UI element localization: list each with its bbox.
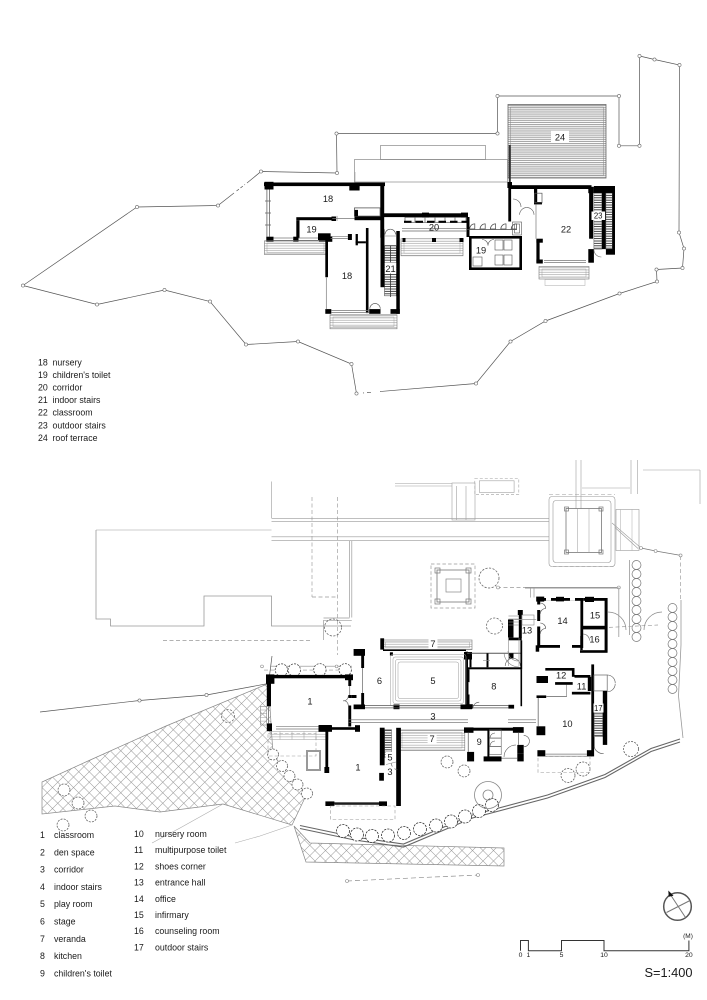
svg-text:9: 9 [40, 968, 45, 978]
svg-text:23: 23 [38, 420, 48, 430]
svg-text:9: 9 [477, 737, 482, 747]
svg-text:indoor stairs: indoor stairs [53, 395, 102, 405]
svg-text:shoes corner: shoes corner [155, 861, 206, 871]
svg-text:7: 7 [40, 934, 45, 944]
svg-text:20: 20 [38, 383, 48, 393]
svg-text:7: 7 [430, 734, 435, 744]
svg-text:24: 24 [38, 433, 48, 443]
svg-text:office: office [155, 894, 176, 904]
svg-text:6: 6 [40, 917, 45, 927]
svg-text:1: 1 [355, 763, 360, 773]
svg-text:18: 18 [323, 194, 333, 204]
svg-text:veranda: veranda [54, 934, 86, 944]
svg-text:19: 19 [38, 370, 48, 380]
svg-text:corridor: corridor [54, 865, 84, 875]
svg-text:11: 11 [134, 845, 143, 855]
svg-text:classroom: classroom [54, 830, 94, 840]
svg-text:1: 1 [40, 830, 45, 840]
svg-text:10: 10 [562, 719, 572, 729]
svg-text:1: 1 [527, 952, 531, 959]
svg-text:11: 11 [577, 682, 587, 692]
svg-text:indoor stairs: indoor stairs [54, 882, 103, 892]
svg-text:17: 17 [594, 704, 603, 713]
svg-text:12: 12 [134, 861, 144, 871]
svg-text:15: 15 [590, 611, 600, 621]
svg-text:24: 24 [555, 133, 565, 143]
svg-text:infirmary: infirmary [155, 910, 189, 920]
svg-text:20: 20 [685, 952, 693, 959]
svg-text:roof terrace: roof terrace [53, 433, 98, 443]
svg-text:den space: den space [54, 847, 95, 857]
svg-text:13: 13 [522, 626, 532, 636]
svg-text:nursery room: nursery room [155, 829, 207, 839]
svg-text:21: 21 [385, 264, 395, 274]
svg-text:15: 15 [134, 910, 144, 920]
svg-text:5: 5 [387, 753, 392, 763]
svg-text:corridor: corridor [53, 383, 83, 393]
svg-text:play room: play room [54, 899, 93, 909]
svg-text:8: 8 [40, 951, 45, 961]
svg-text:multipurpose toilet: multipurpose toilet [155, 845, 227, 855]
svg-text:10: 10 [134, 829, 144, 839]
svg-text:22: 22 [561, 225, 571, 235]
svg-text:5: 5 [40, 899, 45, 909]
svg-text:4: 4 [40, 882, 45, 892]
svg-text:S=1:400: S=1:400 [644, 965, 692, 980]
svg-text:19: 19 [306, 225, 316, 235]
svg-text:21: 21 [38, 395, 48, 405]
svg-text:23: 23 [594, 212, 603, 221]
svg-text:22: 22 [38, 408, 48, 418]
svg-text:14: 14 [134, 894, 144, 904]
svg-text:7: 7 [430, 639, 435, 649]
svg-text:2: 2 [40, 847, 45, 857]
svg-text:8: 8 [491, 682, 496, 692]
svg-text:3: 3 [430, 712, 435, 722]
svg-text:6: 6 [377, 676, 382, 686]
svg-text:18: 18 [342, 271, 352, 281]
svg-text:kitchen: kitchen [54, 951, 82, 961]
svg-text:14: 14 [557, 616, 567, 626]
svg-text:5: 5 [560, 952, 564, 959]
svg-text:nursery: nursery [53, 357, 83, 367]
svg-text:10: 10 [600, 952, 608, 959]
svg-text:17: 17 [134, 942, 144, 952]
svg-text:entrance hall: entrance hall [155, 878, 205, 888]
svg-text:16: 16 [589, 635, 599, 645]
svg-text:children's toilet: children's toilet [53, 370, 111, 380]
svg-text:stage: stage [54, 917, 76, 927]
svg-text:classroom: classroom [53, 408, 93, 418]
svg-text:children's toilet: children's toilet [54, 968, 112, 978]
svg-text:outdoor stairs: outdoor stairs [155, 942, 209, 952]
svg-text:19: 19 [476, 246, 486, 256]
svg-text:18: 18 [38, 357, 48, 367]
svg-text:(M): (M) [683, 933, 693, 940]
svg-text:1: 1 [307, 697, 312, 707]
svg-text:outdoor stairs: outdoor stairs [53, 420, 107, 430]
svg-text:5: 5 [430, 676, 435, 686]
svg-text:12: 12 [556, 671, 566, 681]
svg-text:13: 13 [134, 878, 144, 888]
svg-text:3: 3 [387, 767, 392, 777]
svg-text:0: 0 [519, 952, 523, 959]
svg-text:20: 20 [429, 223, 439, 233]
svg-text:counseling room: counseling room [155, 926, 220, 936]
svg-text:16: 16 [134, 926, 144, 936]
svg-text:3: 3 [40, 865, 45, 875]
